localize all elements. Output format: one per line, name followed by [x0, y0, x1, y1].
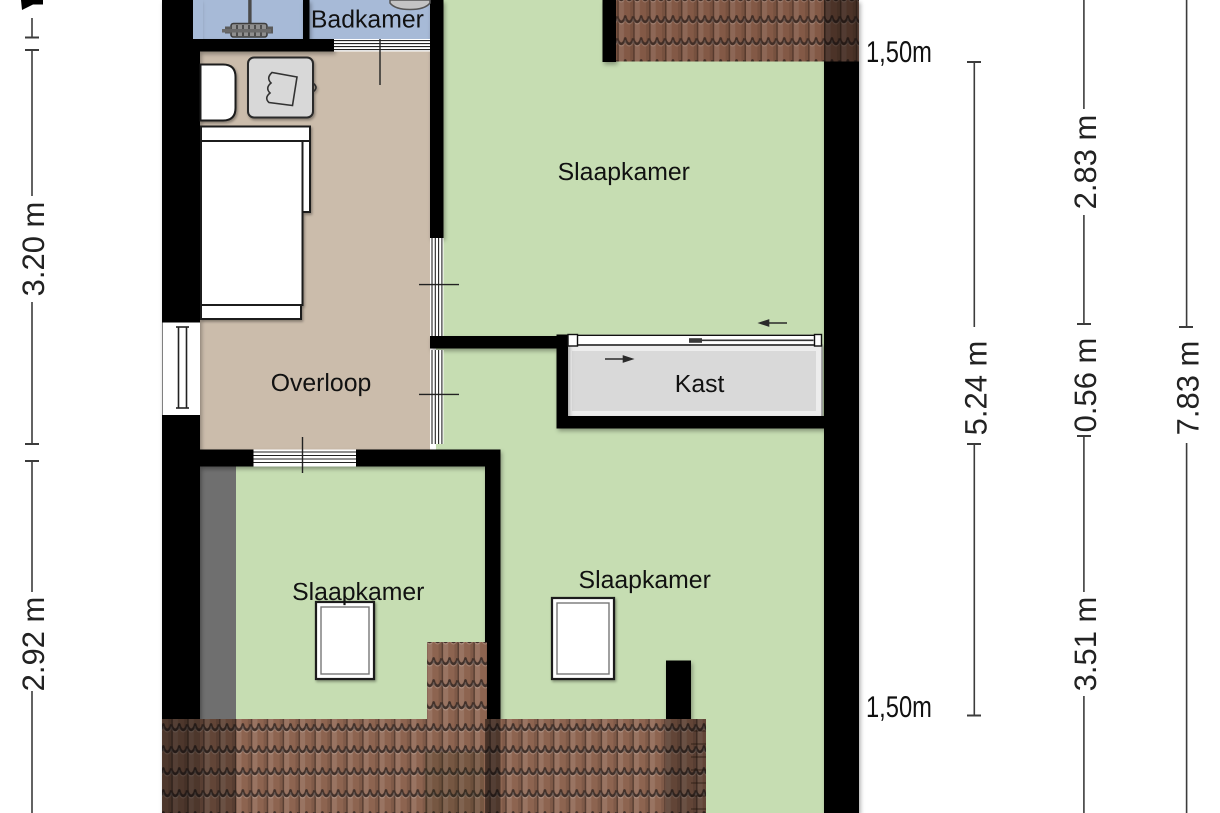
svg-text:0.56 m: 0.56 m: [1068, 338, 1103, 433]
svg-text:Slaapkamer: Slaapkamer: [292, 579, 424, 606]
svg-text:Badkamer: Badkamer: [311, 7, 424, 34]
svg-text:2.83 m: 2.83 m: [1068, 115, 1103, 210]
svg-text:1,50m: 1,50m: [866, 691, 932, 724]
svg-text:Slaapkamer: Slaapkamer: [579, 567, 711, 594]
svg-text:3.20 m: 3.20 m: [16, 202, 51, 297]
svg-text:3.51 m: 3.51 m: [1068, 597, 1103, 692]
svg-text:Overloop: Overloop: [271, 370, 372, 397]
svg-text:5.24 m: 5.24 m: [959, 341, 994, 436]
svg-text:2.92 m: 2.92 m: [16, 597, 51, 692]
svg-text:Slaapkamer: Slaapkamer: [558, 159, 690, 186]
svg-text:Kast: Kast: [675, 371, 725, 398]
svg-text:1,50m: 1,50m: [866, 36, 932, 69]
svg-text:7.83 m: 7.83 m: [1171, 341, 1206, 436]
